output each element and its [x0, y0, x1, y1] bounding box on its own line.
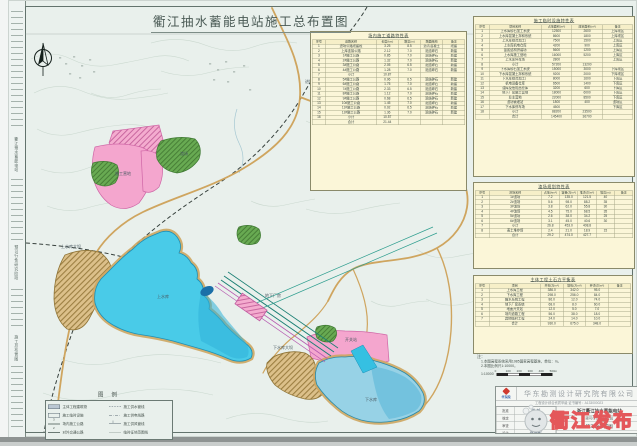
north-arrow-icon — [35, 43, 52, 76]
legend-item: 施工临时设施 — [48, 411, 109, 420]
settlement-marks — [59, 56, 251, 91]
upper-reservoir — [95, 231, 253, 361]
earthwork-table: 主体工程土石方平衡表 序号项目开挖(万m³)填筑(万m³)弃渣(万m³)备注1上… — [473, 275, 633, 354]
legend-swatch-rect-solid — [48, 405, 60, 410]
road-table: 场内施工道路特性表 序号道路名称长度(km)路宽(m)路面结构备注1进场公路改建… — [310, 31, 467, 191]
spoil-table-title: 渣场规划特性表 — [474, 184, 634, 190]
watermark: 衢江发布 — [520, 399, 637, 439]
facilities-table-grid: 序号项目名称占地面积(m²)建筑面积(m²)备注1上水库砂石加工系统125002… — [474, 25, 634, 120]
legend-swatch-dash2 — [109, 405, 121, 410]
legend-item: 主体工程建筑物 — [48, 403, 109, 412]
legend-left-column: 主体工程建筑物施工临时设施场内施工公路对外交通公路 — [48, 403, 109, 438]
earthwork-table-title: 主体工程土石方平衡表 — [474, 277, 632, 283]
legend-item: 对外交通公路 — [48, 428, 109, 437]
watermark-text: 衢江发布 — [550, 406, 634, 433]
scale-ratio: 1:10000 — [481, 373, 494, 377]
wechat-bubble-icon — [520, 404, 550, 434]
drawing-sheet: 衢江抽水蓄能电站 预可行性研究阶段 施工总布置图 衢江抽水蓄能电站施工总布置图 — [8, 0, 637, 437]
legend-item: 场内施工公路 — [48, 420, 109, 429]
legend-title: 图 例 — [58, 391, 160, 399]
legend-right-column: 施工供水管线施工供电线路施工供风管线临时征地范围线 — [109, 403, 170, 438]
legend: 图 例 主体工程建筑物施工临时设施场内施工公路对外交通公路 施工供水管线施工供电… — [45, 390, 173, 438]
facilities-table-title: 施工临时设施特性表 — [474, 18, 634, 24]
spoil-table: 渣场规划特性表 序号渣场名称占地(hm²)容量(万m³)堆渣(万m³)堆高(m)… — [473, 182, 635, 269]
spoil-table-grid: 序号渣场名称占地(hm²)容量(万m³)堆渣(万m³)堆高(m)备注11#渣场7… — [474, 191, 634, 239]
underground-powerhouse — [235, 293, 267, 321]
legend-swatch-road3 — [48, 422, 60, 427]
bottom-light-strip — [0, 442, 637, 446]
drawing-sheet-title: 衢江抽水蓄能电站施工总布置图 — [151, 11, 351, 33]
legend-swatch-ticks — [109, 422, 121, 427]
scale-bar-segments — [497, 373, 553, 376]
drawing-photo: 衢江抽水蓄能电站 预可行性研究阶段 施工总布置图 衢江抽水蓄能电站施工总布置图 — [0, 0, 637, 446]
legend-swatch-dashdot — [109, 413, 121, 418]
legend-item: 施工供风管线 — [109, 420, 170, 429]
facilities-table: 施工临时设施特性表 序号项目名称占地面积(m²)建筑面积(m²)备注1上水库砂石… — [473, 16, 635, 177]
legend-item: 施工供电线路 — [109, 411, 170, 420]
road-table-title: 场内施工道路特性表 — [311, 33, 466, 39]
company-logo: 华东院 — [496, 387, 517, 400]
scale-bar: 1:10000 0100200300400500m — [481, 370, 633, 376]
scale-tick-labels: 0100200300400500m — [497, 370, 563, 373]
legend-box: 主体工程建筑物施工临时设施场内施工公路对外交通公路 施工供水管线施工供电线路施工… — [45, 400, 173, 440]
legend-item: 施工供水管线 — [109, 403, 170, 412]
earthwork-table-grid: 序号项目开挖(万m³)填筑(万m³)弃渣(万m³)备注1上水库工程386.034… — [474, 284, 632, 327]
lower-reservoir — [315, 345, 424, 422]
road-table-grid: 序号道路名称长度(km)路宽(m)路面结构备注1进场公路改建段3.258.5沥青… — [311, 40, 466, 125]
legend-item: 临时征地范围线 — [109, 428, 170, 437]
legend-swatch-road2 — [48, 430, 60, 435]
note-line: 2.本图比例尺1:10000。 — [481, 364, 633, 369]
legend-swatch-thin — [109, 430, 121, 435]
legend-swatch-rect-open — [48, 413, 60, 418]
